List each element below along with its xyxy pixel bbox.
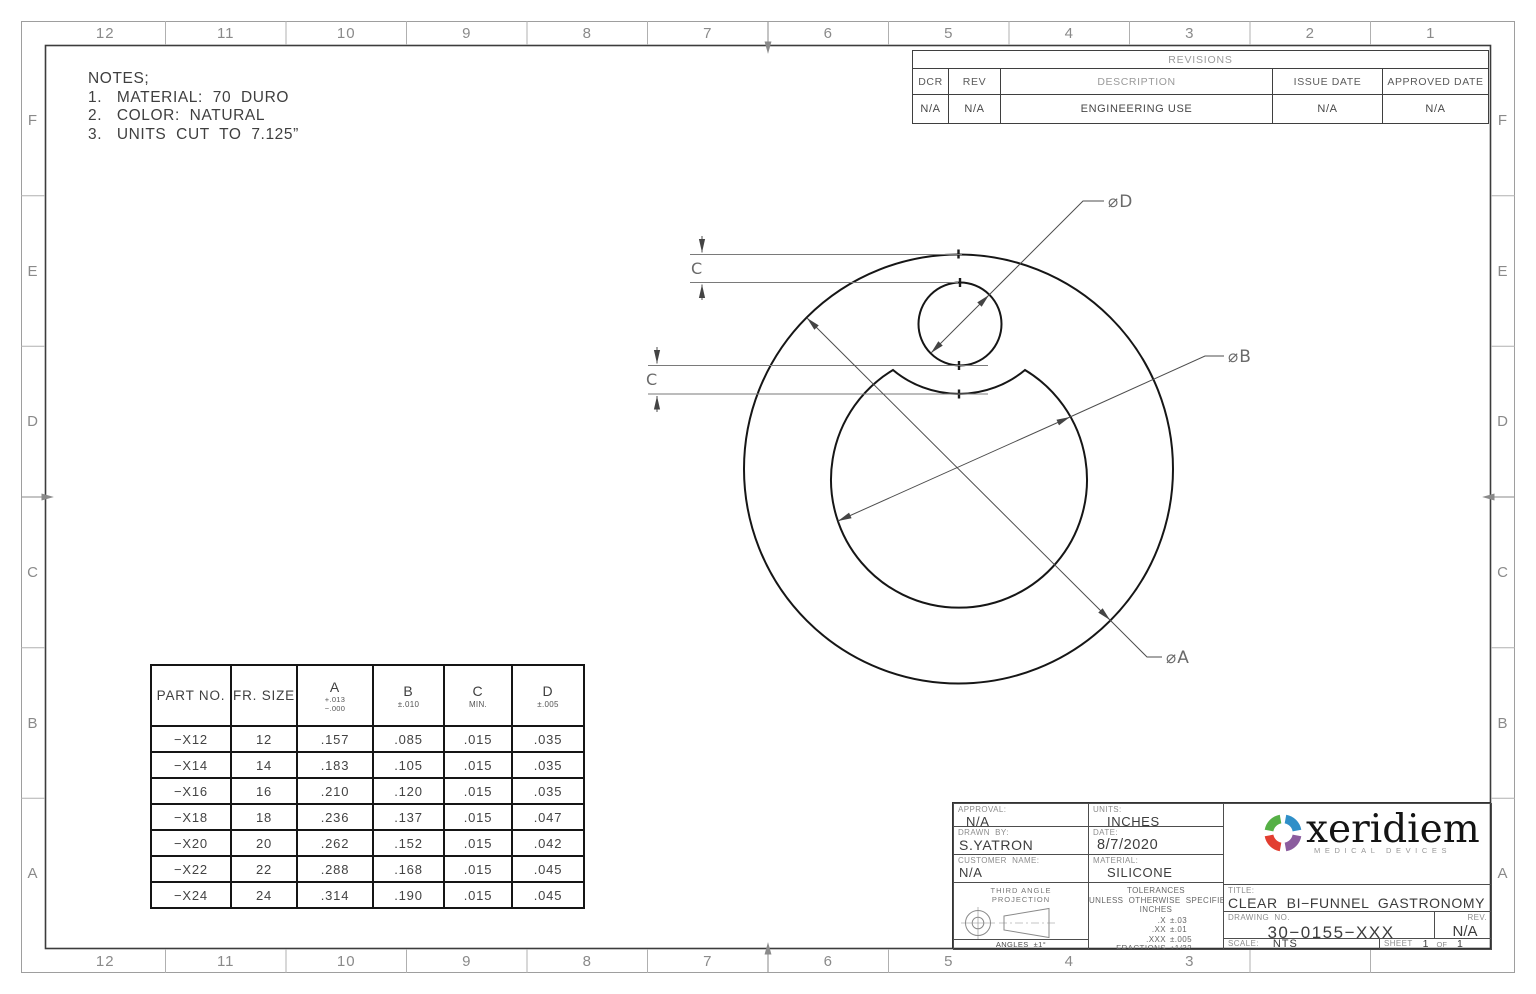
zone-label: 11 (166, 21, 287, 45)
cell-fr-size: 22 (231, 856, 297, 882)
size-table-row: −X22 22 .288 .168 .015 .045 (151, 856, 584, 882)
zone-label: E (21, 196, 45, 347)
cell-a: .236 (297, 804, 373, 830)
zone-label (1250, 949, 1371, 973)
zone-label: D (1491, 346, 1515, 497)
tolerance-row: .XXX ±.005 (1104, 935, 1208, 945)
cell-b: .137 (373, 804, 444, 830)
revision-issue-date: N/A (1273, 95, 1383, 124)
cell-a: .288 (297, 856, 373, 882)
cell-d: .047 (512, 804, 584, 830)
cell-part-no: −X22 (151, 856, 231, 882)
drawing-number: 30−0155−XXX (1228, 923, 1434, 939)
cell-b: .105 (373, 752, 444, 778)
zone-label: 10 (286, 949, 407, 973)
cell-c: .015 (444, 804, 512, 830)
size-table-row: −X12 12 .157 .085 .015 .035 (151, 726, 584, 752)
cell-c: .015 (444, 856, 512, 882)
title-block: APPROVAL: N/A DRAWN BY: S.YATRON CUSTOME… (952, 802, 1491, 949)
tolerance-row: FRACTIONS ±1/32 (1104, 944, 1208, 950)
col-b: B ±.010 (373, 665, 444, 726)
cell-fr-size: 12 (231, 726, 297, 752)
revisions-title: REVISIONS (913, 51, 1489, 69)
notes-block: NOTES; 1. MATERIAL: 70 DURO2. COLOR: NAT… (88, 70, 299, 144)
zone-label: 9 (407, 21, 528, 45)
cell-a: .210 (297, 778, 373, 804)
zone-label: 5 (889, 21, 1010, 45)
company-contact: Ph: 520−882−7794 4700 S. Overland Drive,… (1230, 857, 1486, 885)
cell-a: .183 (297, 752, 373, 778)
note-item: 2. COLOR: NATURAL (88, 107, 299, 126)
zone-label: 2 (1250, 21, 1371, 45)
revisions-row: N/A N/A ENGINEERING USE N/A N/A (913, 95, 1489, 124)
tolerances-cell: TOLERANCES UNLESS OTHERWISE SPECIFIED IN… (1088, 882, 1224, 950)
approval-cell: APPROVAL: N/A (953, 803, 1089, 827)
cell-part-no: −X14 (151, 752, 231, 778)
main-lumen-with-notch (831, 370, 1087, 608)
zone-label: 11 (166, 949, 287, 973)
dimension-lines (657, 201, 1224, 657)
projection-cell: THIRD ANGLE PROJECTION (953, 882, 1089, 940)
revision-rev: N/A (949, 95, 1001, 124)
cell-d: .045 (512, 856, 584, 882)
cell-b: .085 (373, 726, 444, 752)
cell-c: .015 (444, 830, 512, 856)
cell-d: .035 (512, 778, 584, 804)
cell-b: .120 (373, 778, 444, 804)
dim-label-c-upper: C (691, 259, 703, 278)
zone-label: A (1491, 798, 1515, 949)
zone-label: 7 (648, 949, 769, 973)
col-c: C MIN. (444, 665, 512, 726)
zone-label: F (1491, 45, 1515, 196)
tolerance-row: .X ±.03 (1104, 916, 1208, 926)
col-c-tol: MIN. (445, 700, 511, 709)
zone-label (1371, 949, 1492, 973)
cell-part-no: −X12 (151, 726, 231, 752)
col-a: A +.013 −.000 (297, 665, 373, 726)
sheet-total: 1 (1457, 938, 1463, 950)
title-cell: TITLE: CLEAR BI−FUNNEL GASTRONOMY TUBE (1223, 884, 1492, 912)
cell-part-no: −X18 (151, 804, 231, 830)
zone-label: 12 (45, 949, 166, 973)
company-name: xeridiem (1306, 811, 1480, 849)
zone-label: 10 (286, 21, 407, 45)
dim-label-diameter-d: ⌀D (1108, 192, 1133, 212)
zone-rows-right: FEDCBA (1491, 45, 1515, 949)
material-cell: MATERIAL: SILICONE (1088, 854, 1224, 883)
cell-d: .035 (512, 726, 584, 752)
size-table: PART NO. FR. SIZE A +.013 −.000 B ±.010 … (150, 664, 585, 909)
col-d: D ±.005 (512, 665, 584, 726)
col-part-no: PART NO. (151, 665, 231, 726)
zone-label: 12 (45, 21, 166, 45)
size-table-row: −X24 24 .314 .190 .015 .045 (151, 882, 584, 908)
zone-label: B (1491, 648, 1515, 799)
cell-a: .262 (297, 830, 373, 856)
company-cell: xeridiem MEDICAL DEVICES Ph: 520−882−779… (1223, 803, 1492, 885)
revisions-header-description: DESCRIPTION (1001, 69, 1273, 95)
zone-label: 6 (768, 949, 889, 973)
third-angle-projection-icon (954, 905, 1072, 940)
zone-label: D (21, 346, 45, 497)
zone-label: C (21, 497, 45, 648)
zone-columns-top: 121110987654321 (45, 21, 1491, 45)
cell-d: .035 (512, 752, 584, 778)
zone-label: A (21, 798, 45, 949)
zone-label: 1 (1371, 21, 1492, 45)
dim-label-diameter-a: ⌀A (1166, 648, 1190, 668)
col-d-tol: ±.005 (513, 700, 583, 709)
cell-part-no: −X20 (151, 830, 231, 856)
col-a-tol-minus: −.000 (298, 705, 372, 713)
drawn-by-cell: DRAWN BY: S.YATRON (953, 826, 1089, 855)
size-table-row: −X18 18 .236 .137 .015 .047 (151, 804, 584, 830)
angles-value: ANGLES ±1° (954, 940, 1088, 950)
zone-columns-bottom: 1211109876543 (45, 949, 1491, 973)
cell-fr-size: 20 (231, 830, 297, 856)
col-a-tol-plus: +.013 (298, 696, 372, 704)
angles-cell: ANGLES ±1° (953, 939, 1089, 950)
zone-label: 5 (889, 949, 1010, 973)
scale-cell: SCALE: NTS (1223, 938, 1380, 950)
size-table-row: −X14 14 .183 .105 .015 .035 (151, 752, 584, 778)
scale-value: NTS (1273, 938, 1298, 950)
cell-d: .042 (512, 830, 584, 856)
dim-label-diameter-b: ⌀B (1228, 347, 1252, 367)
cell-b: .190 (373, 882, 444, 908)
cell-part-no: −X16 (151, 778, 231, 804)
note-item: 1. MATERIAL: 70 DURO (88, 89, 299, 108)
cell-part-no: −X24 (151, 882, 231, 908)
zone-label: E (1491, 196, 1515, 347)
company-logo: xeridiem MEDICAL DEVICES (1260, 810, 1491, 856)
zone-label: 8 (527, 949, 648, 973)
note-item: 3. UNITS CUT TO 7.125” (88, 126, 299, 145)
dim-label-c-lower: C (646, 370, 658, 389)
material-value: SILICONE (1107, 865, 1223, 880)
revision-dcr: N/A (913, 95, 949, 124)
logo-arc-red (1269, 835, 1281, 847)
cell-fr-size: 24 (231, 882, 297, 908)
drawing-sheet: ⌀D ⌀B ⌀A C C 121110987654321 12111098765… (0, 0, 1536, 994)
cell-c: .015 (444, 882, 512, 908)
cell-c: .015 (444, 752, 512, 778)
revision-approved-date: N/A (1383, 95, 1489, 124)
size-table-row: −X20 20 .262 .152 .015 .042 (151, 830, 584, 856)
col-b-tol: ±.010 (374, 700, 443, 709)
logo-arc-purple (1285, 835, 1297, 847)
zone-label: 3 (1130, 21, 1251, 45)
zone-label: 4 (1009, 21, 1130, 45)
zone-label: 9 (407, 949, 528, 973)
revisions-table: REVISIONS DCR REV DESCRIPTION ISSUE DATE… (912, 50, 1489, 124)
xeridiem-logo-icon (1260, 810, 1306, 856)
tolerance-row: .XX ±.01 (1104, 925, 1208, 935)
zone-label: B (21, 648, 45, 799)
cell-fr-size: 18 (231, 804, 297, 830)
zone-label: 8 (527, 21, 648, 45)
cell-c: .015 (444, 726, 512, 752)
rev-value: N/A (1439, 923, 1491, 939)
sheet-number: 1 (1423, 938, 1429, 950)
notes-title: NOTES; (88, 70, 299, 89)
zone-label: C (1491, 497, 1515, 648)
drawn-by-value: S.YATRON (959, 837, 1088, 853)
date-cell: DATE: 8/7/2020 (1088, 826, 1224, 855)
rev-cell: REV. N/A (1434, 911, 1492, 939)
date-value: 8/7/2020 (1097, 837, 1223, 853)
dim-line-d (931, 295, 989, 353)
revisions-header-dcr: DCR (913, 69, 949, 95)
drawing-number-cell: DRAWING NO. 30−0155−XXX (1223, 911, 1435, 939)
col-fr-size: FR. SIZE (231, 665, 297, 726)
zone-label: 7 (648, 21, 769, 45)
drawing-title: CLEAR BI−FUNNEL GASTRONOMY TUBE (1228, 895, 1491, 911)
logo-arc-green (1269, 819, 1281, 831)
cell-fr-size: 14 (231, 752, 297, 778)
units-cell: UNITS: INCHES (1088, 803, 1224, 827)
revisions-header-approved-date: APPROVED DATE (1383, 69, 1489, 95)
cell-d: .045 (512, 882, 584, 908)
cell-a: .314 (297, 882, 373, 908)
revisions-header-rev: REV (949, 69, 1001, 95)
zone-rows-left: FEDCBA (21, 45, 45, 949)
customer-value: N/A (959, 865, 1088, 880)
sheet-cell: SHEET 1 OF 1 (1379, 938, 1492, 950)
cell-a: .157 (297, 726, 373, 752)
zone-label: F (21, 45, 45, 196)
dim-line-b (838, 417, 1070, 521)
size-table-header: PART NO. FR. SIZE A +.013 −.000 B ±.010 … (151, 665, 584, 726)
cell-b: .168 (373, 856, 444, 882)
revisions-header-issue-date: ISSUE DATE (1273, 69, 1383, 95)
zone-label: 3 (1130, 949, 1251, 973)
customer-cell: CUSTOMER NAME: N/A (953, 854, 1089, 883)
cell-b: .152 (373, 830, 444, 856)
size-table-row: −X16 16 .210 .120 .015 .035 (151, 778, 584, 804)
zone-label: 6 (768, 21, 889, 45)
logo-arc-blue (1285, 819, 1297, 831)
zone-label: 4 (1009, 949, 1130, 973)
cell-c: .015 (444, 778, 512, 804)
revision-description: ENGINEERING USE (1001, 95, 1273, 124)
cell-fr-size: 16 (231, 778, 297, 804)
